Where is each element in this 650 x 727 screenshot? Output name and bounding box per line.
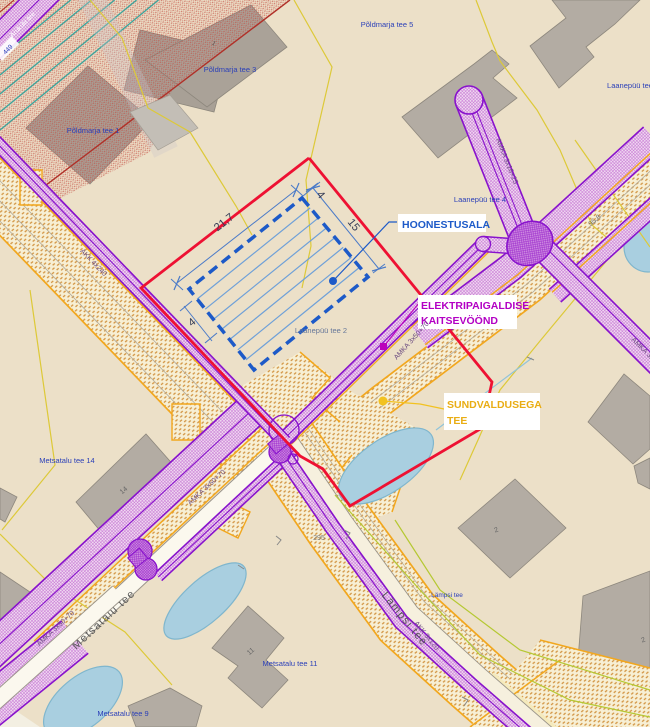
svg-text:Laanepüü tee 4: Laanepüü tee 4 [454,195,506,204]
svg-text:Lämpsi tee: Lämpsi tee [431,592,463,599]
svg-text:Laanepüü tee 2: Laanepüü tee 2 [295,326,347,335]
svg-text:Metsatalu tee 14: Metsatalu tee 14 [39,456,94,465]
svg-text:TEE: TEE [447,415,467,427]
svg-text:Põldmarja tee 1: Põldmarja tee 1 [67,126,120,135]
svg-text:Põldmarja tee 5: Põldmarja tee 5 [361,20,414,29]
svg-text:Metsatalu tee 9: Metsatalu tee 9 [97,709,148,718]
svg-text:Põldmarja tee 3: Põldmarja tee 3 [204,65,257,74]
svg-text:ELEKTRIPAIGALDISE: ELEKTRIPAIGALDISE [421,300,529,312]
svg-text:SUNDVALDUSEGA: SUNDVALDUSEGA [447,399,542,411]
svg-text:KAITSEVÖÖND: KAITSEVÖÖND [421,314,498,327]
svg-text:Metsatalu tee 11: Metsatalu tee 11 [263,659,318,668]
svg-text:295: 295 [313,535,325,542]
svg-text:Laanepüü tee: Laanepüü tee [607,81,650,90]
svg-text:HOONESTUSALA: HOONESTUSALA [402,219,491,231]
